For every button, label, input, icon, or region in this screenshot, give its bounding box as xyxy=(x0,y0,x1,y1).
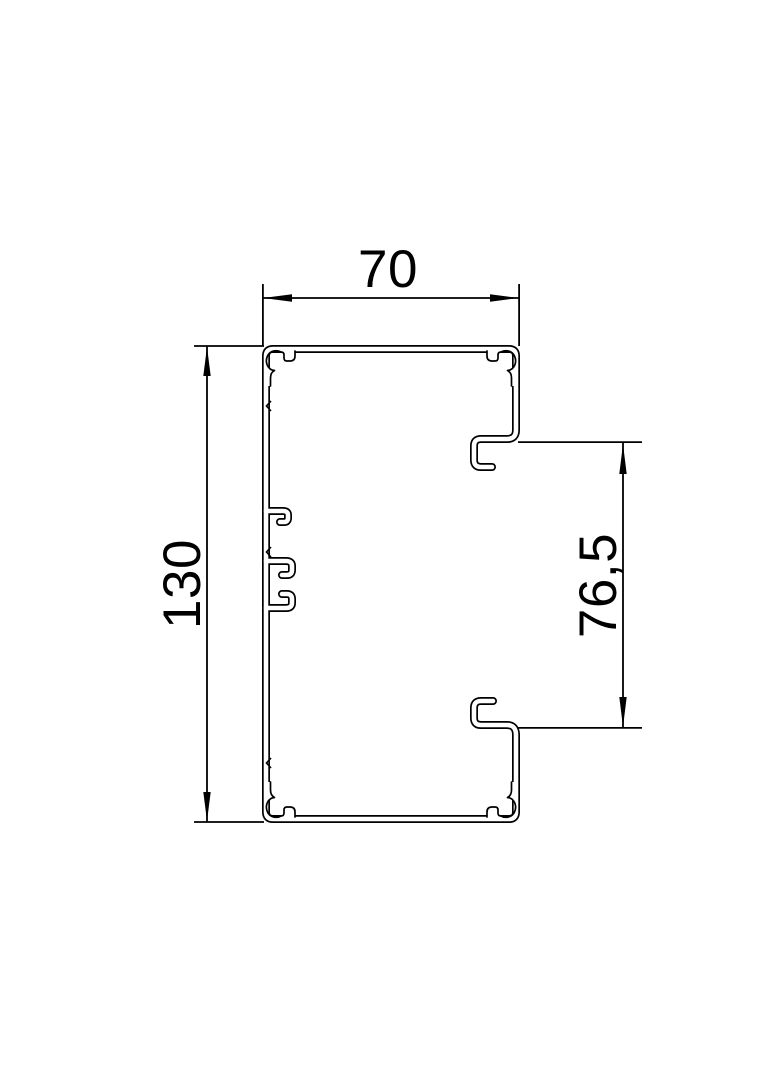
dimension-width: 70 xyxy=(262,240,520,346)
corner-feature-bottom-left xyxy=(266,782,295,818)
drawing-canvas: 70 130 76,5 xyxy=(0,0,784,1066)
profile-wall-black xyxy=(266,349,516,819)
opening-dimension-label: 76,5 xyxy=(569,533,628,638)
height-arrow-bottom xyxy=(203,792,210,821)
dimension-height: 130 xyxy=(153,346,264,822)
height-dimension-label: 130 xyxy=(153,539,212,629)
corner-feature-top-left xyxy=(266,351,295,387)
opening-arrow-top xyxy=(619,444,626,474)
width-dimension-label: 70 xyxy=(358,240,418,299)
opening-arrow-bottom xyxy=(619,697,626,727)
corner-feature-bottom-right xyxy=(487,782,516,818)
width-arrow-left xyxy=(263,294,292,301)
dimension-cover-opening: 76,5 xyxy=(518,442,642,728)
height-arrow-top xyxy=(203,347,210,376)
profile-outline xyxy=(266,349,516,819)
profile-main-wall xyxy=(266,349,516,819)
corner-feature-top-right xyxy=(487,351,516,387)
width-arrow-right xyxy=(490,294,519,301)
profile-cross-section-drawing: 70 130 76,5 xyxy=(0,0,784,1066)
profile-wall-white xyxy=(266,349,516,819)
